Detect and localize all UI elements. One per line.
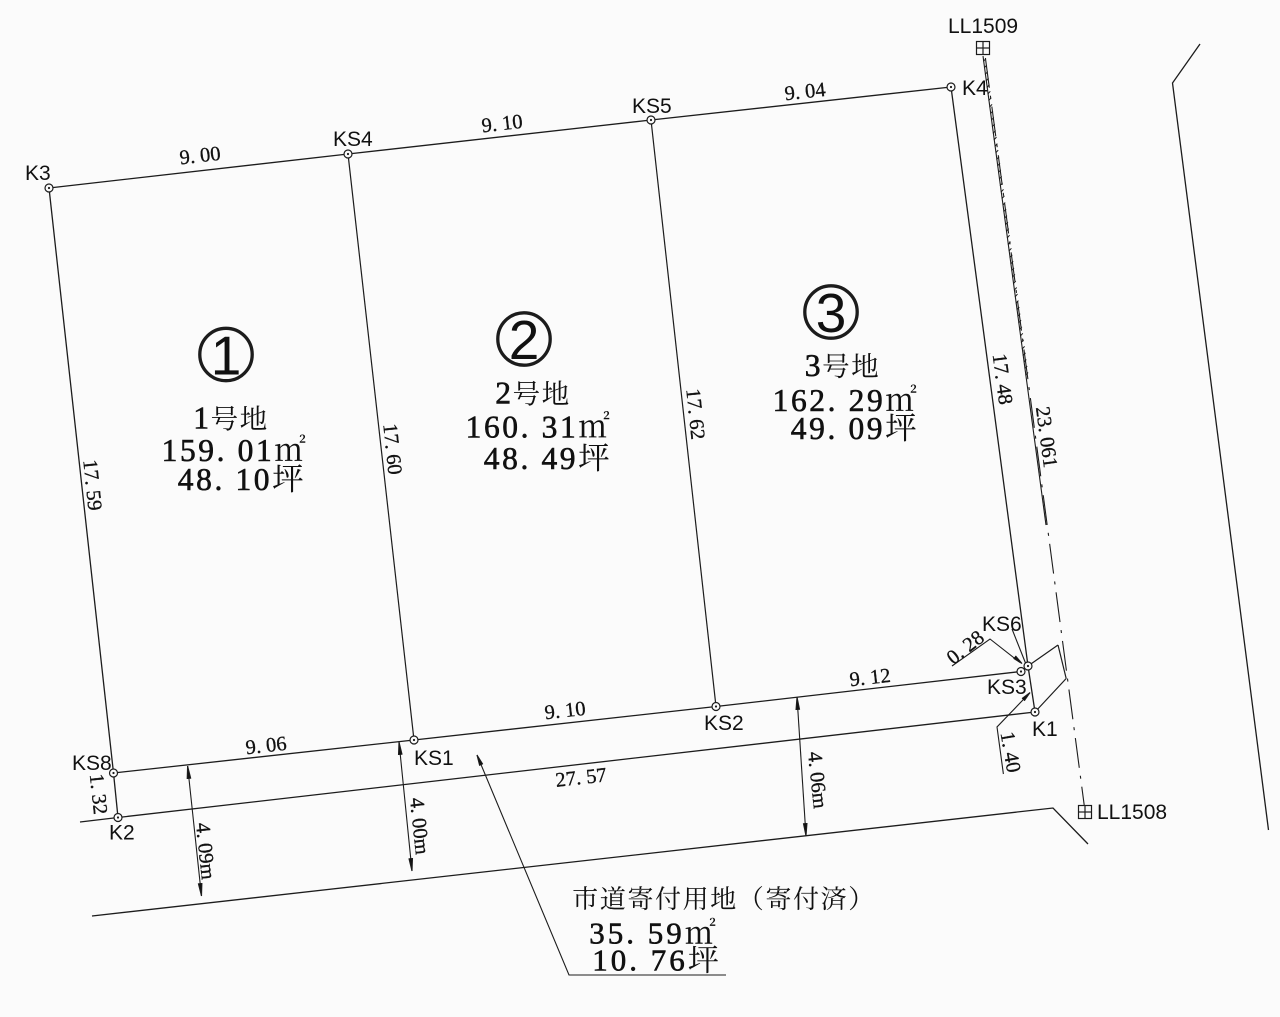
svg-text:K2: K2 [109,822,135,845]
svg-text:K1: K1 [1032,718,1058,741]
svg-text:10. 76: 10. 76 [592,943,688,978]
svg-text:KS4: KS4 [333,128,373,151]
svg-text:9. 12: 9. 12 [849,665,892,691]
svg-text:LL1508: LL1508 [1097,801,1167,824]
svg-text:48. 10: 48. 10 [178,462,272,497]
svg-text:9. 06: 9. 06 [245,733,288,759]
svg-text:3: 3 [805,348,822,383]
svg-text:48. 49: 48. 49 [484,441,578,476]
svg-text:9. 04: 9. 04 [784,79,827,105]
svg-text:1: 1 [193,401,210,436]
svg-text:KS2: KS2 [704,712,744,735]
svg-text:49. 09: 49. 09 [791,411,885,446]
svg-text:KS6: KS6 [982,613,1022,636]
svg-text:KS3: KS3 [987,676,1027,699]
svg-text:KS8: KS8 [72,752,112,775]
svg-text:9. 10: 9. 10 [481,111,524,137]
svg-text:3: 3 [816,282,847,344]
svg-text:KS5: KS5 [632,95,672,118]
svg-text:K3: K3 [25,162,51,185]
svg-text:LL1509: LL1509 [948,15,1018,38]
svg-text:9. 00: 9. 00 [179,143,222,169]
svg-text:KS1: KS1 [414,747,454,770]
svg-text:9. 10: 9. 10 [544,698,587,724]
svg-text:1. 32: 1. 32 [85,773,111,816]
svg-text:2: 2 [509,309,540,371]
svg-text:K4: K4 [962,77,988,100]
svg-text:2: 2 [495,376,512,411]
svg-text:1: 1 [211,324,242,386]
svg-text:160. 31: 160. 31 [466,409,579,444]
